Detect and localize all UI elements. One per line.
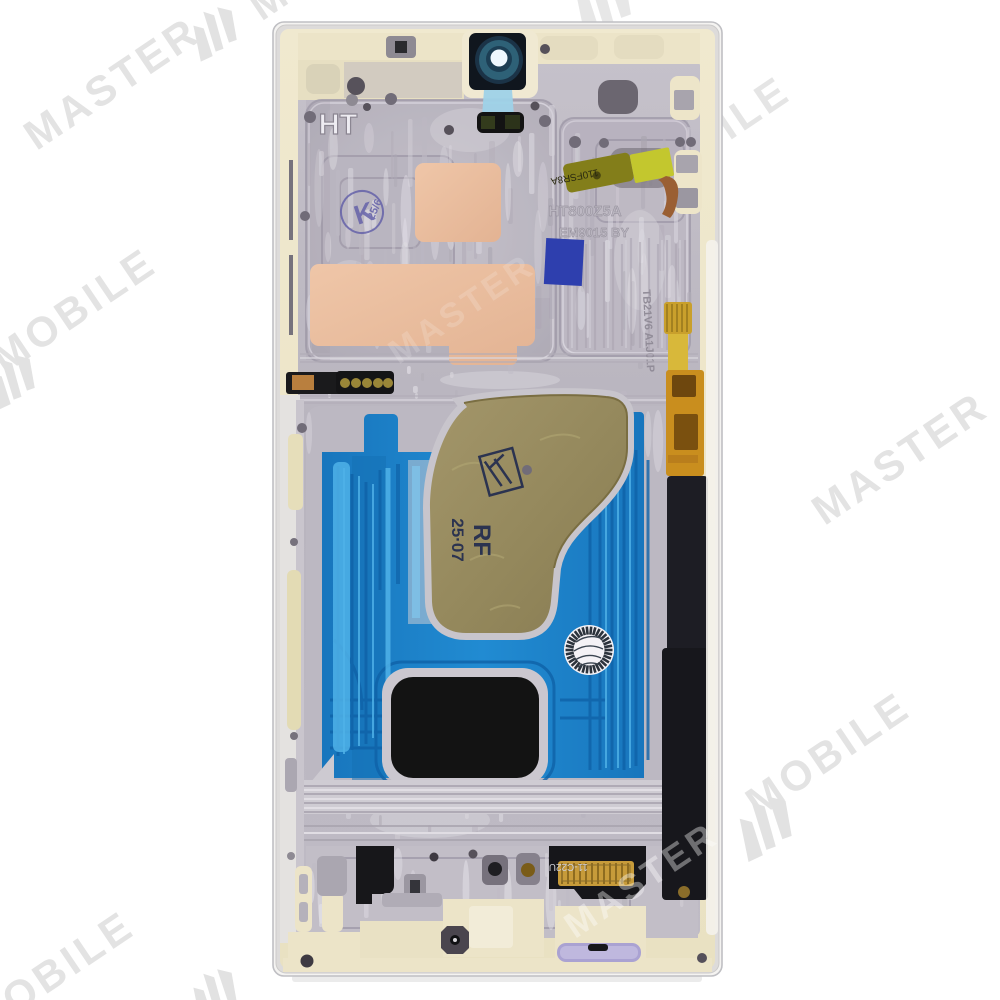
- svg-text:EM9015 BY: EM9015 BY: [559, 225, 629, 240]
- svg-text:25·07: 25·07: [448, 518, 467, 561]
- svg-text:HT800Z5A: HT800Z5A: [548, 203, 622, 220]
- svg-text:HT: HT: [319, 109, 358, 141]
- svg-text:RF: RF: [468, 524, 495, 556]
- svg-text:11-C22U: 11-C22U: [549, 861, 588, 872]
